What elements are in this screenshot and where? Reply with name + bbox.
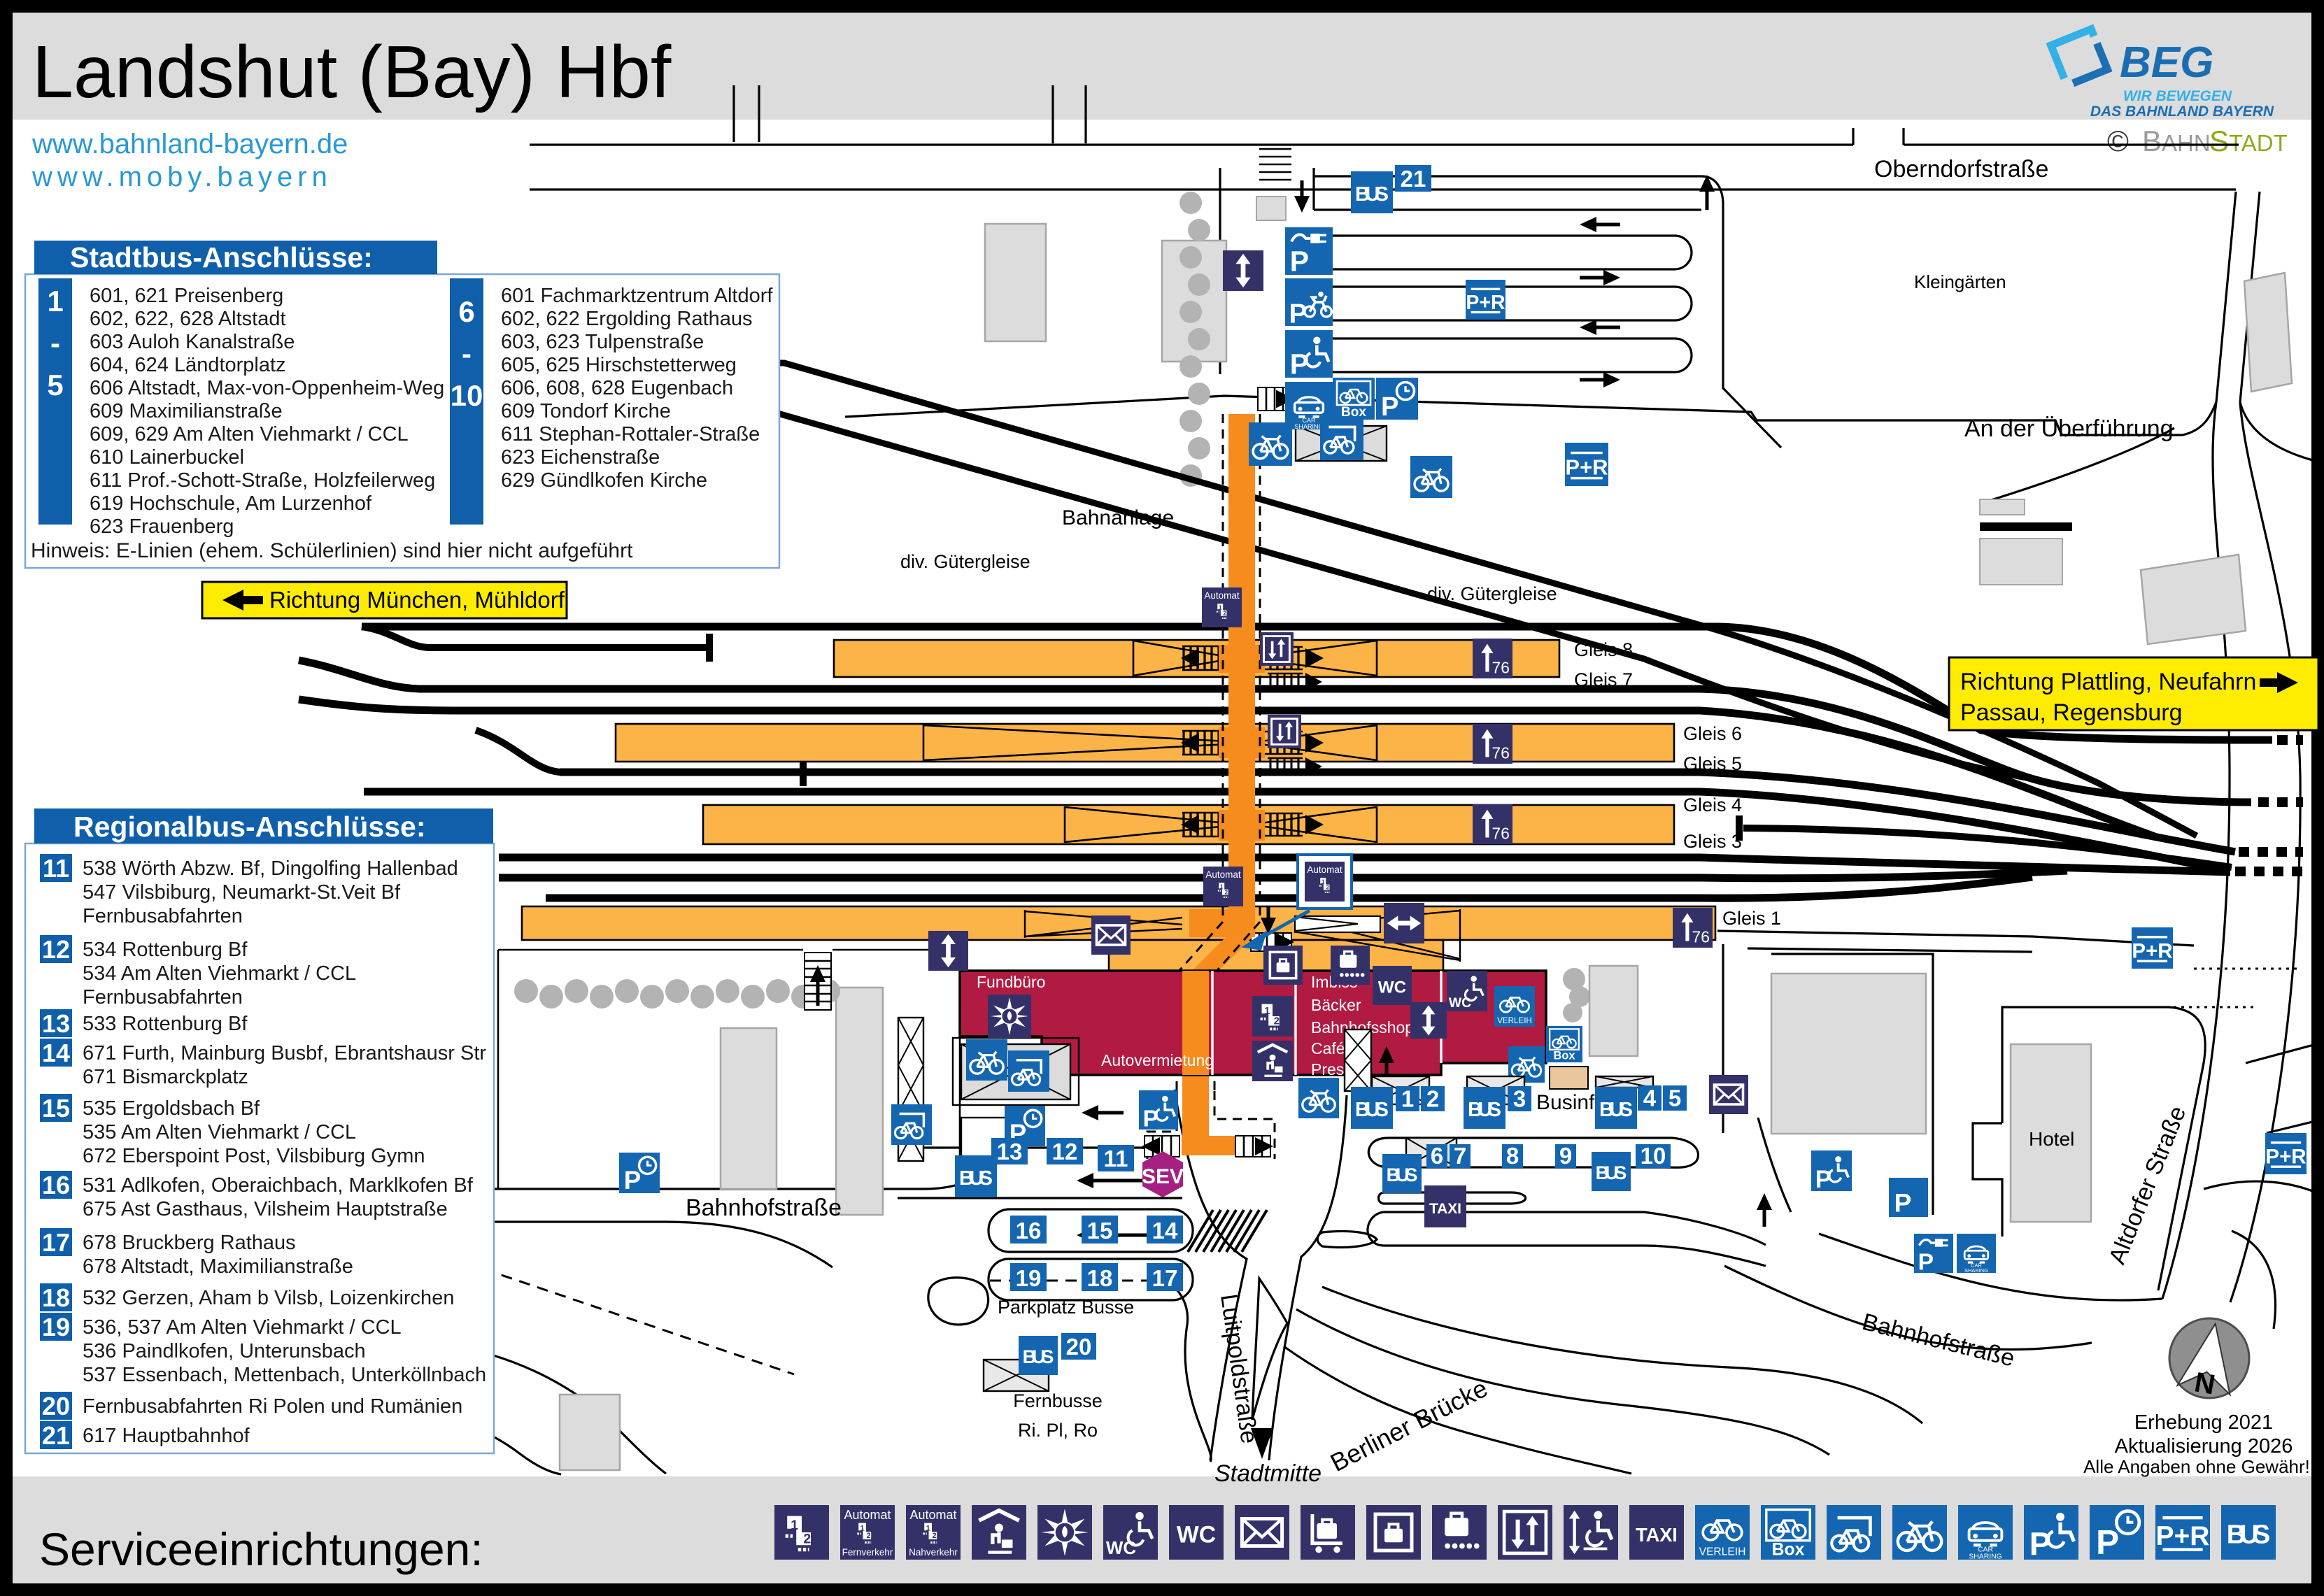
svg-text:Fundbüro: Fundbüro bbox=[977, 973, 1045, 991]
svg-text:Alle Angaben ohne Gewähr!: Alle Angaben ohne Gewähr! bbox=[2083, 1456, 2310, 1477]
svg-text:533 Rottenburg Bf: 533 Rottenburg Bf bbox=[83, 1013, 248, 1035]
svg-text:18: 18 bbox=[42, 1283, 70, 1312]
svg-text:Gleis 8: Gleis 8 bbox=[1574, 639, 1633, 660]
svg-text:An der Überführung: An der Überführung bbox=[1964, 415, 2174, 442]
svg-text:611 Prof.-Schott-Straße, Holzf: 611 Prof.-Schott-Straße, Holzfeilerweg bbox=[90, 469, 435, 492]
svg-text:Fernbusse: Fernbusse bbox=[1013, 1390, 1103, 1411]
svg-text:671 Furth, Mainburg Busbf, Ebr: 671 Furth, Mainburg Busbf, Ebrantshausr … bbox=[83, 1042, 486, 1064]
svg-text:Fernbusabfahrten: Fernbusabfahrten bbox=[83, 986, 243, 1009]
svg-text:611 Stephan-Rottaler-Straße: 611 Stephan-Rottaler-Straße bbox=[501, 423, 760, 446]
svg-text:STADT: STADT bbox=[2209, 124, 2288, 157]
svg-text:19: 19 bbox=[42, 1313, 70, 1341]
svg-text:Nahverkehr: Nahverkehr bbox=[909, 1547, 958, 1558]
svg-text:623 Frauenberg: 623 Frauenberg bbox=[90, 515, 234, 538]
svg-text:601 Fachmarktzentrum Altdorf: 601 Fachmarktzentrum Altdorf bbox=[501, 285, 773, 307]
svg-text:623 Eichenstraße: 623 Eichenstraße bbox=[501, 446, 660, 469]
svg-text:678 Bruckberg Rathaus: 678 Bruckberg Rathaus bbox=[83, 1232, 296, 1254]
svg-text:536 Paindlkofen, Unterunsbach: 536 Paindlkofen, Unterunsbach bbox=[83, 1340, 366, 1362]
svg-text:21: 21 bbox=[1401, 166, 1426, 192]
svg-text:4: 4 bbox=[1643, 1085, 1657, 1111]
svg-text:605, 625 Hirschstetterweg: 605, 625 Hirschstetterweg bbox=[501, 354, 737, 376]
svg-text:DAS BAHNLAND BAYERN: DAS BAHNLAND BAYERN bbox=[2090, 104, 2274, 120]
svg-text:Fernverkehr: Fernverkehr bbox=[842, 1547, 893, 1558]
svg-text:536, 537 Am Alten Viehmarkt /: 536, 537 Am Alten Viehmarkt / CCL bbox=[83, 1316, 402, 1339]
svg-text:7: 7 bbox=[1454, 1143, 1466, 1169]
svg-text:14: 14 bbox=[42, 1039, 70, 1067]
svg-text:Gleis 5: Gleis 5 bbox=[1683, 753, 1742, 774]
svg-text:Oberndorfstraße: Oberndorfstraße bbox=[1874, 156, 2048, 183]
svg-text:602, 622 Ergolding Rathaus: 602, 622 Ergolding Rathaus bbox=[501, 308, 753, 330]
svg-text:Automat: Automat bbox=[1307, 864, 1342, 875]
svg-text:Café: Café bbox=[1311, 1039, 1345, 1057]
svg-text:Gleis 3: Gleis 3 bbox=[1683, 831, 1742, 852]
svg-text:601, 621 Preisenberg: 601, 621 Preisenberg bbox=[90, 285, 283, 307]
svg-text:Regionalbus-Anschlüsse:: Regionalbus-Anschlüsse: bbox=[73, 811, 425, 843]
svg-text:602, 622, 628 Altstadt: 602, 622, 628 Altstadt bbox=[90, 308, 286, 330]
svg-text:678 Altstadt, Maximilianstraße: 678 Altstadt, Maximilianstraße bbox=[83, 1255, 353, 1278]
svg-text:Kleingärten: Kleingärten bbox=[1914, 271, 2006, 292]
svg-text:Parkplatz Busse: Parkplatz Busse bbox=[998, 1297, 1134, 1318]
svg-text:Richtung Plattling, Neufahrn: Richtung Plattling, Neufahrn bbox=[1960, 669, 2256, 695]
svg-text:13: 13 bbox=[997, 1139, 1023, 1164]
svg-text:675 Ast Gasthaus, Vilsheim Hau: 675 Ast Gasthaus, Vilsheim Hauptstraße bbox=[83, 1198, 448, 1220]
svg-text:3: 3 bbox=[1513, 1086, 1526, 1112]
svg-text:531 Adlkofen, Oberaichbach, Ma: 531 Adlkofen, Oberaichbach, Marklkofen B… bbox=[83, 1174, 474, 1197]
svg-text:12: 12 bbox=[1052, 1139, 1078, 1164]
svg-text:WIR BEWEGEN: WIR BEWEGEN bbox=[2123, 88, 2232, 104]
svg-text:6: 6 bbox=[458, 295, 474, 328]
svg-text:535 Ergoldsbach Bf: 535 Ergoldsbach Bf bbox=[83, 1097, 260, 1120]
svg-text:Bahnhofstraße: Bahnhofstraße bbox=[686, 1195, 842, 1221]
svg-text:5: 5 bbox=[1668, 1085, 1681, 1111]
svg-text:547 Vilsbiburg, Neumarkt-St.Ve: 547 Vilsbiburg, Neumarkt-St.Veit Bf bbox=[83, 881, 401, 904]
svg-text:1: 1 bbox=[47, 285, 63, 318]
svg-text:www.moby.bayern: www.moby.bayern bbox=[31, 162, 332, 192]
svg-text:Stadtbus-Anschlüsse:: Stadtbus-Anschlüsse: bbox=[70, 241, 373, 273]
svg-text:Erhebung 2021: Erhebung 2021 bbox=[2134, 1411, 2273, 1434]
svg-text:609 Maximilianstraße: 609 Maximilianstraße bbox=[90, 400, 283, 422]
svg-text:Automat: Automat bbox=[1205, 869, 1241, 880]
svg-text:532 Gerzen, Aham b Vilsb, Loiz: 532 Gerzen, Aham b Vilsb, Loizenkirchen bbox=[83, 1287, 454, 1309]
svg-text:Gleis 4: Gleis 4 bbox=[1683, 795, 1742, 815]
svg-text:603, 623 Tulpenstraße: 603, 623 Tulpenstraße bbox=[501, 331, 704, 353]
svg-text:6: 6 bbox=[1431, 1143, 1443, 1169]
svg-text:17: 17 bbox=[42, 1228, 70, 1257]
svg-text:div. Gütergleise: div. Gütergleise bbox=[900, 551, 1030, 572]
svg-text:Automat: Automat bbox=[844, 1508, 891, 1522]
svg-text:603 Auloh Kanalstraße: 603 Auloh Kanalstraße bbox=[90, 331, 295, 353]
svg-text:629 Gündlkofen Kirche: 629 Gündlkofen Kirche bbox=[501, 469, 707, 492]
svg-text:2: 2 bbox=[1426, 1086, 1439, 1112]
svg-text:9: 9 bbox=[1559, 1143, 1572, 1169]
svg-text:Automat: Automat bbox=[1204, 590, 1240, 601]
svg-text:15: 15 bbox=[42, 1094, 70, 1123]
svg-text:12: 12 bbox=[42, 935, 70, 964]
svg-text:15: 15 bbox=[1087, 1218, 1113, 1244]
svg-text:8: 8 bbox=[1506, 1143, 1519, 1169]
svg-text:13: 13 bbox=[42, 1009, 70, 1038]
svg-text:Bäcker: Bäcker bbox=[1311, 996, 1361, 1014]
svg-text:5: 5 bbox=[47, 369, 63, 401]
svg-text:div. Gütergleise: div. Gütergleise bbox=[1427, 583, 1557, 604]
svg-text:10: 10 bbox=[1641, 1143, 1666, 1169]
svg-text:BEG: BEG bbox=[2120, 38, 2213, 87]
svg-text:Richtung München, Mühldorf: Richtung München, Mühldorf bbox=[269, 587, 565, 613]
svg-text:609, 629 Am Alten Viehmarkt /: 609, 629 Am Alten Viehmarkt / CCL bbox=[90, 423, 409, 446]
svg-text:604, 624 Ländtorplatz: 604, 624 Ländtorplatz bbox=[90, 354, 286, 376]
svg-text:11: 11 bbox=[43, 854, 69, 883]
svg-text:Bahnanlage: Bahnanlage bbox=[1062, 506, 1174, 529]
svg-text:16: 16 bbox=[1016, 1218, 1042, 1244]
svg-text:Fernbusabfahrten Ri Polen und: Fernbusabfahrten Ri Polen und Rumänien bbox=[83, 1395, 462, 1418]
svg-text:609 Tondorf Kirche: 609 Tondorf Kirche bbox=[501, 400, 671, 422]
svg-text:-: - bbox=[50, 327, 60, 359]
svg-text:Ri. Pl, Ro: Ri. Pl, Ro bbox=[1018, 1420, 1098, 1441]
svg-text:18: 18 bbox=[1087, 1265, 1113, 1291]
svg-text:19: 19 bbox=[1016, 1265, 1042, 1291]
svg-text:Stadtmitte: Stadtmitte bbox=[1214, 1460, 1322, 1487]
svg-text:535 Am Alten Viehmarkt / CCL: 535 Am Alten Viehmarkt / CCL bbox=[83, 1121, 356, 1143]
svg-text:606 Altstadt, Max-von-Oppenhei: 606 Altstadt, Max-von-Oppenheim-Weg bbox=[90, 377, 444, 399]
svg-text:Hotel: Hotel bbox=[2029, 1128, 2074, 1150]
svg-text:Automat: Automat bbox=[909, 1508, 956, 1522]
svg-text:Autovermietung: Autovermietung bbox=[1101, 1051, 1214, 1069]
svg-text:671 Bismarckplatz: 671 Bismarckplatz bbox=[83, 1066, 248, 1088]
svg-text:10: 10 bbox=[451, 379, 483, 412]
svg-text:16: 16 bbox=[42, 1171, 70, 1199]
svg-text:617 Hauptbahnhof: 617 Hauptbahnhof bbox=[83, 1425, 250, 1447]
svg-text:©: © bbox=[2107, 124, 2129, 157]
svg-text:20: 20 bbox=[42, 1392, 70, 1420]
svg-text:21: 21 bbox=[42, 1421, 70, 1450]
svg-text:www.bahnland-bayern.de: www.bahnland-bayern.de bbox=[31, 129, 348, 159]
svg-text:Serviceeinrichtungen:: Serviceeinrichtungen: bbox=[39, 1523, 483, 1575]
svg-text:610 Lainerbuckel: 610 Lainerbuckel bbox=[90, 446, 244, 469]
svg-text:538 Wörth Abzw. Bf, Dingolfing: 538 Wörth Abzw. Bf, Dingolfing Hallenbad bbox=[83, 857, 458, 880]
svg-text:20: 20 bbox=[1066, 1334, 1092, 1360]
svg-text:Landshut (Bay) Hbf: Landshut (Bay) Hbf bbox=[32, 31, 672, 113]
svg-text:Hinweis: E-Linien (ehem. Schül: Hinweis: E-Linien (ehem. Schülerlinien) … bbox=[31, 539, 633, 562]
svg-text:Passau, Regensburg: Passau, Regensburg bbox=[1960, 699, 2183, 726]
svg-text:606, 608, 628 Eugenbach: 606, 608, 628 Eugenbach bbox=[501, 377, 733, 399]
svg-text:534 Am Alten Viehmarkt / CCL: 534 Am Alten Viehmarkt / CCL bbox=[83, 962, 356, 985]
svg-text:Gleis 7: Gleis 7 bbox=[1574, 669, 1633, 690]
svg-text:Fernbusabfahrten: Fernbusabfahrten bbox=[83, 905, 243, 927]
svg-text:1: 1 bbox=[1401, 1086, 1414, 1112]
svg-text:BAHN: BAHN bbox=[2142, 124, 2211, 157]
svg-text:534 Rottenburg Bf: 534 Rottenburg Bf bbox=[83, 939, 248, 961]
svg-text:-: - bbox=[462, 337, 472, 370]
svg-text:537 Essenbach, Mettenbach, Unt: 537 Essenbach, Mettenbach, Unterköllnbac… bbox=[83, 1364, 486, 1386]
svg-text:672 Eberspoint Post, Vilsbibur: 672 Eberspoint Post, Vilsbiburg Gymn bbox=[83, 1145, 425, 1167]
svg-text:619 Hochschule, Am Lurzenhof: 619 Hochschule, Am Lurzenhof bbox=[90, 492, 372, 515]
svg-text:SEV: SEV bbox=[1142, 1165, 1184, 1188]
svg-text:17: 17 bbox=[1152, 1265, 1178, 1291]
svg-text:Gleis 1: Gleis 1 bbox=[1722, 908, 1781, 929]
svg-text:11: 11 bbox=[1104, 1146, 1128, 1171]
svg-text:14: 14 bbox=[1152, 1218, 1178, 1244]
svg-text:Aktualisierung 2026: Aktualisierung 2026 bbox=[2115, 1435, 2293, 1458]
svg-text:Gleis 6: Gleis 6 bbox=[1683, 723, 1742, 744]
